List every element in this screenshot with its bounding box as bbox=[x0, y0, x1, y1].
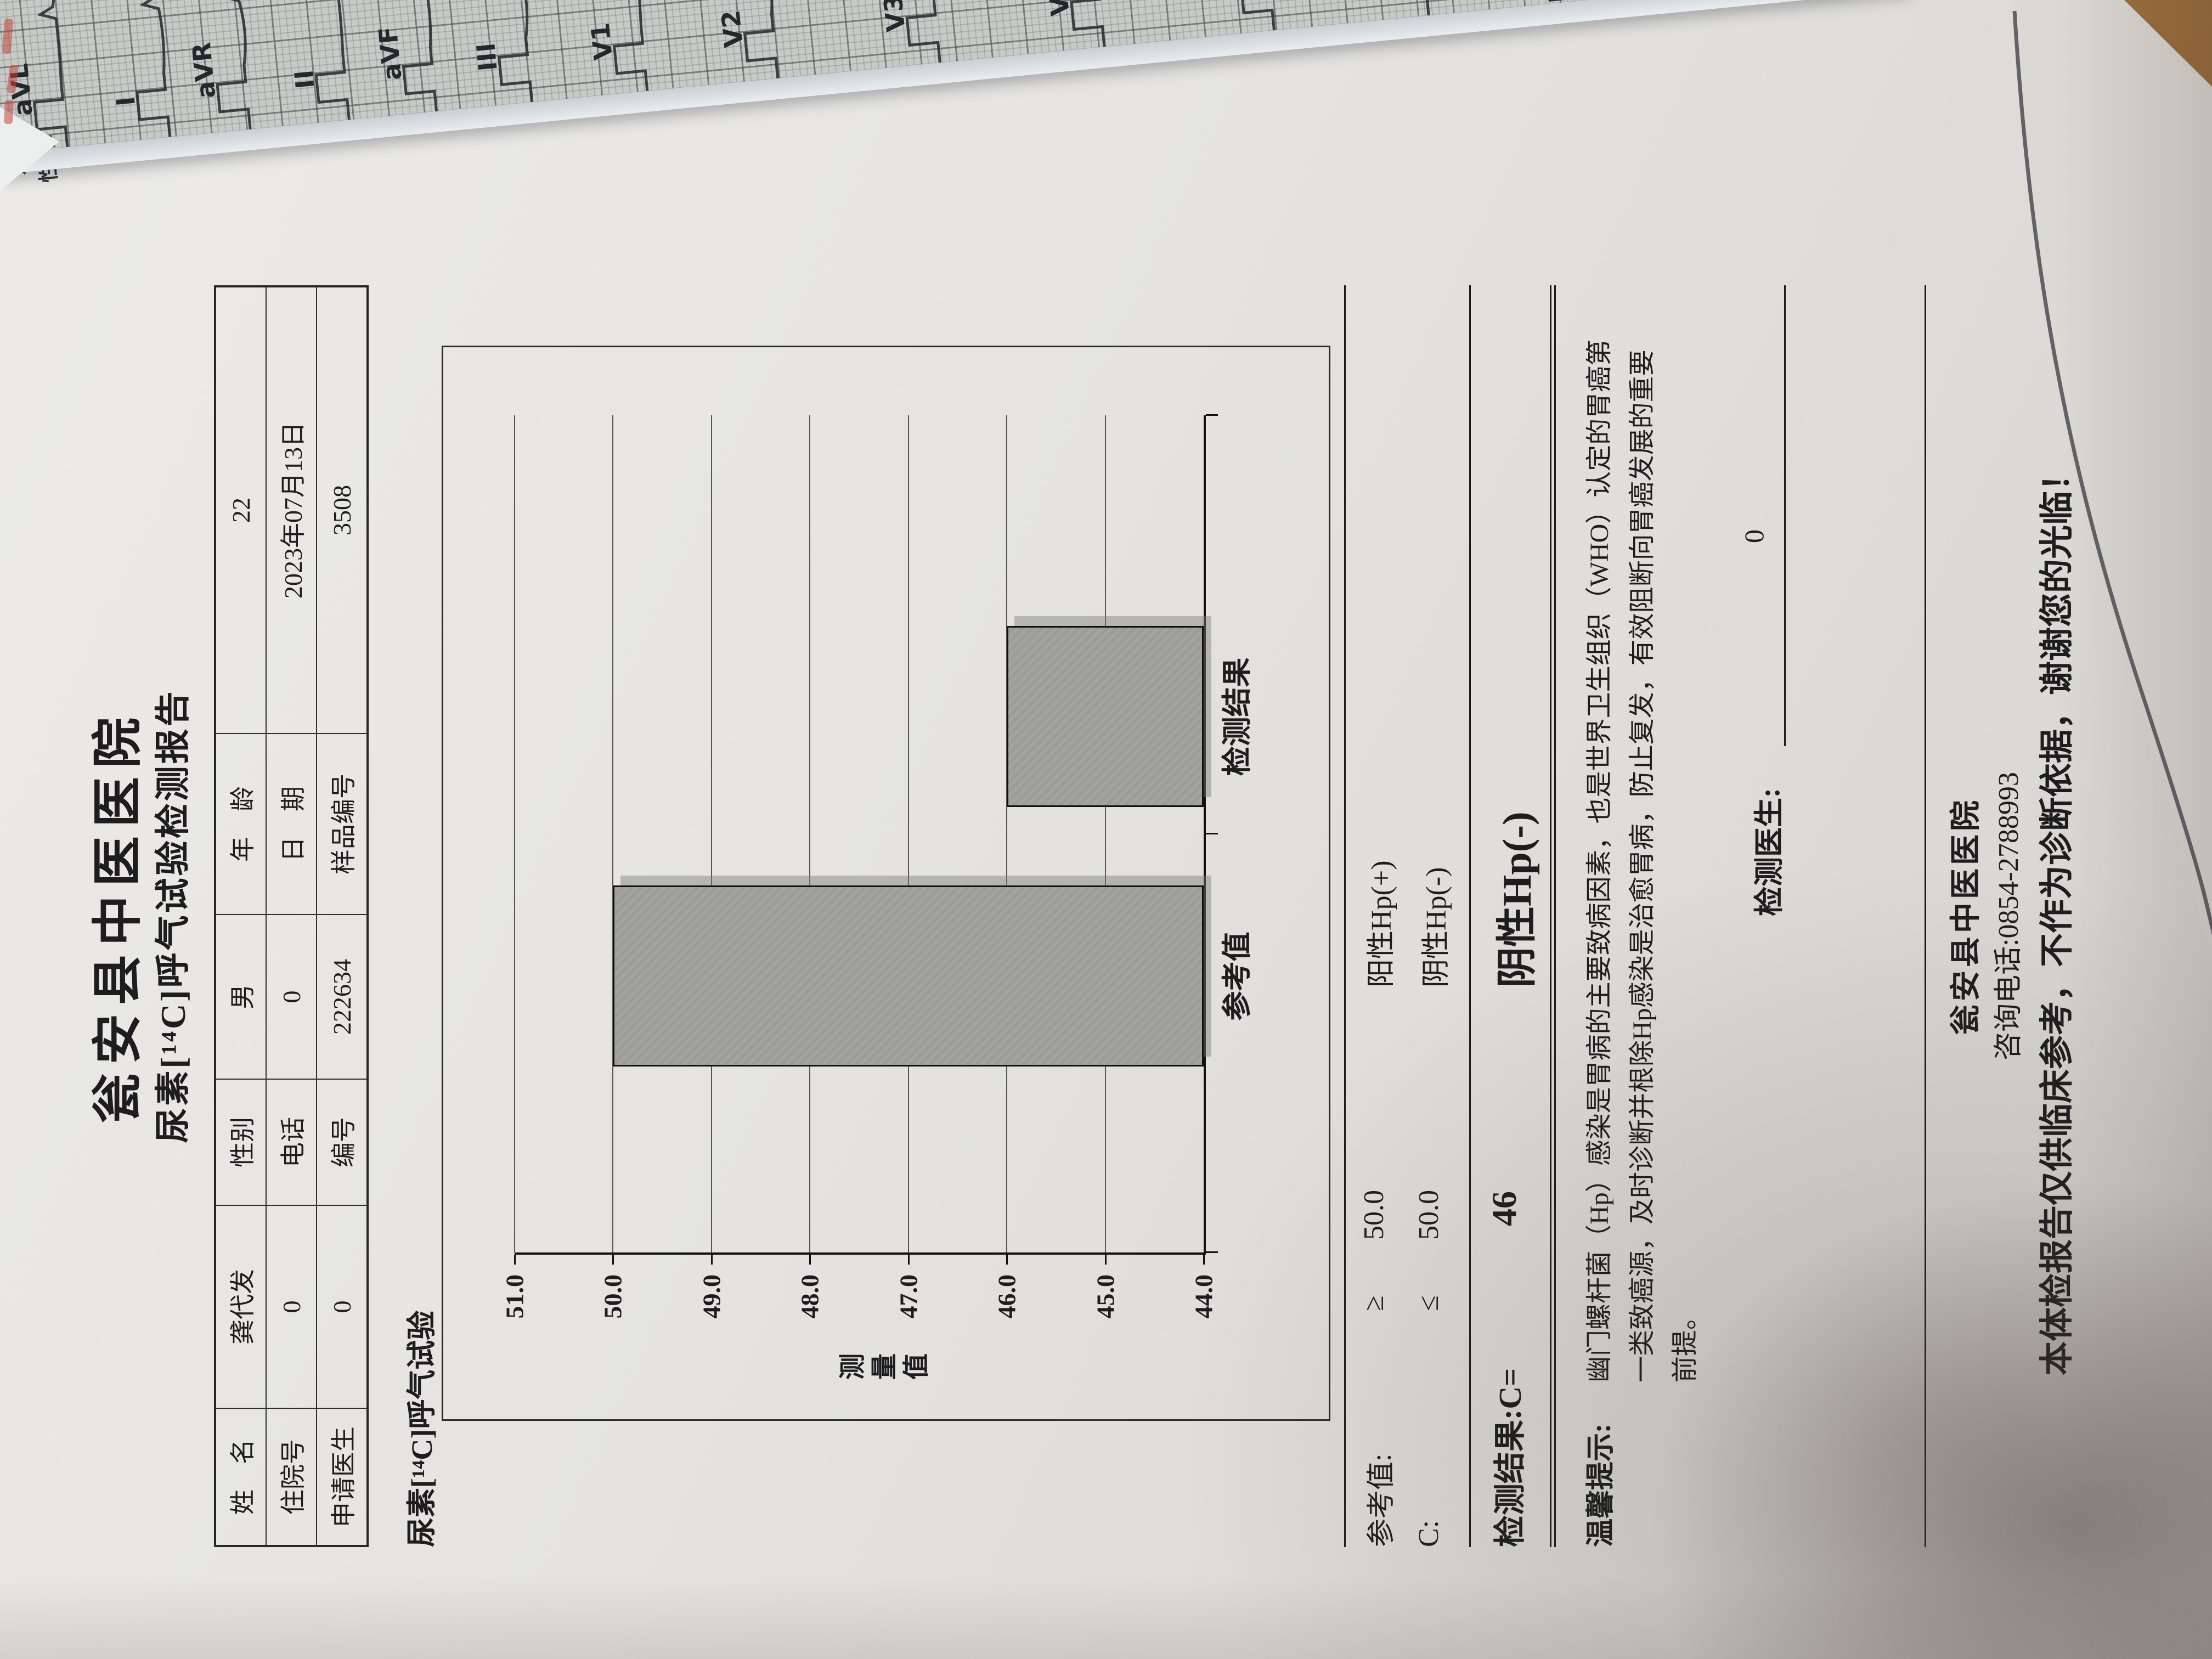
ecg-trace-II bbox=[295, 0, 352, 122]
tips-line: 幽门螺杆菌（Hp）感染是胃病的主要致病因素，也是世界卫生组织（WHO）认定的胃癌… bbox=[1577, 280, 1616, 1383]
double-rule bbox=[1550, 285, 1556, 1547]
rule bbox=[1469, 285, 1471, 1547]
ecg-lead-label-V5: V5 bbox=[1212, 0, 1245, 1]
table-cell-label: 姓 名 bbox=[216, 1408, 266, 1545]
ecg-lead-label-V3: V3 bbox=[878, 0, 911, 33]
y-tick-label: 49.0 bbox=[697, 1274, 726, 1340]
y-tick-mark bbox=[514, 1255, 516, 1265]
result-label: 检测结果:C= bbox=[1484, 1368, 1530, 1547]
table-cell-value: 男 bbox=[216, 915, 266, 1079]
chart-section-heading: 尿素[¹⁴C]呼气试验 bbox=[397, 1311, 441, 1547]
table-cell-value: 0 bbox=[266, 1205, 317, 1408]
plot-area: 51.050.049.048.047.046.045.044.0参考值检测结果 bbox=[515, 415, 1206, 1255]
ecg-lead-label-I: I bbox=[111, 95, 141, 108]
table-cell-value: 龚代发 bbox=[216, 1205, 266, 1408]
gridline bbox=[612, 415, 613, 1252]
category-label: 参考值 bbox=[1212, 932, 1256, 1020]
hospital-title: 瓮安县中医医院 bbox=[77, 214, 150, 1618]
table-cell-value: 3508 bbox=[317, 287, 367, 733]
reference-value: 50.0 bbox=[1358, 1190, 1390, 1240]
y-tick-label: 51.0 bbox=[500, 1274, 529, 1340]
table-cell-label: 年 龄 bbox=[216, 733, 266, 915]
ecg-lead-label-aVR: aVR bbox=[187, 41, 222, 100]
footer-rule bbox=[1925, 285, 1926, 1547]
x-tick-mark bbox=[1206, 414, 1218, 416]
result-verdict: 阴性Hp(-) bbox=[1484, 811, 1543, 988]
report-document: 瓮安县中医医院 尿素[¹⁴C]呼气试验检测报告 姓 名 龚代发 性别 男 年 龄… bbox=[33, 214, 2134, 1618]
y-tick-mark bbox=[1105, 1255, 1107, 1265]
table-cell-value: 22 bbox=[216, 287, 266, 733]
ecg-lead-label-V2: V2 bbox=[716, 9, 749, 48]
table-cell-label: 性别 bbox=[216, 1079, 266, 1205]
table-cell-value: 222634 bbox=[317, 915, 367, 1079]
footer-phone: 咨询电话:0854-2788993 bbox=[1985, 214, 2026, 1618]
ecg-lead-label-aVF: aVF bbox=[373, 25, 407, 82]
y-tick-label: 44.0 bbox=[1189, 1274, 1218, 1340]
photo-canvas: 瓮安县中医医院 尿素[¹⁴C]呼气试验检测报告 姓 名 龚代发 性别 男 年 龄… bbox=[0, 0, 2212, 1659]
table-cell-label: 申请医生 bbox=[317, 1408, 367, 1545]
y-tick-label: 50.0 bbox=[599, 1274, 628, 1340]
ecg-lead-label-V1: V1 bbox=[585, 21, 618, 61]
tips-label: 温馨提示: bbox=[1577, 1424, 1618, 1547]
y-tick-label: 48.0 bbox=[795, 1274, 825, 1340]
footer-hospital: 瓮安县中医医院 bbox=[1941, 214, 1985, 1618]
table-cell-label: 住院号 bbox=[266, 1408, 317, 1545]
y-tick-label: 47.0 bbox=[894, 1274, 923, 1340]
reference-value: 50.0 bbox=[1413, 1190, 1445, 1240]
y-tick-mark bbox=[612, 1255, 614, 1265]
red-mark bbox=[4, 100, 14, 125]
gridline bbox=[809, 415, 810, 1252]
x-tick-mark bbox=[1206, 833, 1218, 834]
ecg-trace-I bbox=[116, 0, 173, 140]
c-label: C: bbox=[1413, 1520, 1445, 1547]
chart-bar-2 bbox=[1007, 626, 1204, 807]
chart-y-axis-title: 测量值 bbox=[838, 1351, 934, 1389]
y-tick-mark bbox=[1006, 1255, 1008, 1265]
x-tick-mark bbox=[1206, 1251, 1218, 1253]
table-cell-label: 样品编号 bbox=[317, 733, 367, 915]
doctor-value: 0 bbox=[1738, 529, 1770, 543]
gridline bbox=[711, 415, 712, 1252]
table-cell-value: 2023年07月13日 bbox=[266, 287, 317, 733]
report-title: 尿素[¹⁴C]呼气试验检测报告 bbox=[145, 214, 195, 1618]
y-tick-mark bbox=[1203, 1255, 1205, 1265]
ecg-lead-label-V4: V4 bbox=[1042, 0, 1075, 17]
table-cell-label: 编号 bbox=[317, 1079, 367, 1205]
ecg-trace-V5 bbox=[1220, 0, 1277, 33]
table-cell-label: 日 期 bbox=[266, 733, 317, 915]
ge-operator: ≥ bbox=[1358, 1295, 1390, 1311]
table-cell-value: 0 bbox=[266, 915, 317, 1079]
reference-label: 参考值: bbox=[1358, 1454, 1399, 1547]
patient-info-table: 姓 名 龚代发 性别 男 年 龄 22 住院号 0 电话 0 日 期 2023年… bbox=[214, 285, 369, 1547]
le-operator: ≤ bbox=[1413, 1295, 1445, 1311]
doctor-label: 检测医生: bbox=[1745, 788, 1788, 916]
gridline bbox=[514, 415, 515, 1252]
chart-bar-1 bbox=[613, 885, 1204, 1066]
gridline bbox=[1105, 415, 1106, 1252]
y-tick-mark bbox=[711, 1255, 713, 1265]
gridline bbox=[908, 415, 909, 1252]
y-tick-mark bbox=[809, 1255, 811, 1265]
tips-line: 前提。 bbox=[1663, 280, 1701, 1383]
ecg-lead-label-III: III bbox=[471, 42, 503, 72]
negative-verdict: 阴性Hp(-) bbox=[1413, 867, 1454, 988]
result-value: 46 bbox=[1484, 1191, 1525, 1226]
doctor-signature-line bbox=[1784, 285, 1786, 746]
table-cell-label: 电话 bbox=[266, 1079, 317, 1205]
category-label: 检测结果 bbox=[1212, 657, 1256, 776]
y-tick-label: 45.0 bbox=[1091, 1274, 1120, 1340]
positive-verdict: 阳性Hp(+) bbox=[1358, 860, 1399, 988]
rule bbox=[1344, 285, 1346, 1547]
tips-line: 一类致癌源，及时诊断并根除Hp感染是治愈胃病，防止复发，有效阻断向胃癌发展的重要 bbox=[1620, 280, 1658, 1383]
gridline bbox=[1006, 415, 1007, 1252]
footer-disclaimer: 本体检报告仅供临床参考，不作为诊断依据，谢谢您的光临！ bbox=[2029, 214, 2078, 1618]
table-cell-value: 0 bbox=[317, 1205, 367, 1408]
bar-chart: 测量值 51.050.049.048.047.046.045.044.0参考值检… bbox=[442, 346, 1330, 1421]
y-tick-label: 46.0 bbox=[992, 1274, 1022, 1340]
ecg-lead-label-II: II bbox=[289, 69, 320, 90]
y-tick-mark bbox=[908, 1255, 910, 1265]
